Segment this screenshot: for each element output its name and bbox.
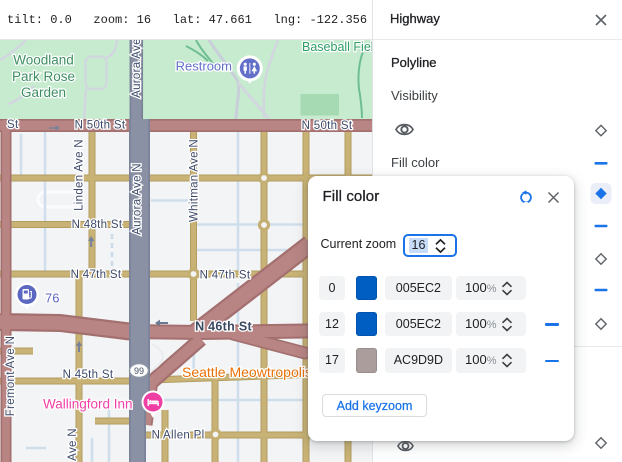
svg-text:N 46th St: N 46th St bbox=[195, 320, 252, 334]
svg-text:St: St bbox=[7, 119, 19, 131]
svg-text:N 45th St: N 45th St bbox=[63, 369, 114, 381]
svg-text:Park Rose: Park Rose bbox=[12, 69, 75, 84]
svg-text:N 50th St: N 50th St bbox=[302, 120, 353, 132]
svg-text:Linden Ave N: Linden Ave N bbox=[74, 139, 86, 211]
svg-text:Woodland: Woodland bbox=[13, 53, 74, 68]
svg-text:Baseball Fiel: Baseball Fiel bbox=[302, 40, 372, 54]
svg-text:Whitman Ave N: Whitman Ave N bbox=[189, 139, 201, 222]
svg-text:Fremont Ave N: Fremont Ave N bbox=[5, 336, 17, 416]
svg-text:Aurora Ave N: Aurora Ave N bbox=[132, 163, 144, 235]
svg-text:Garden: Garden bbox=[21, 85, 66, 100]
svg-text:N 47th St: N 47th St bbox=[71, 269, 122, 281]
svg-text:N Allen Pl: N Allen Pl bbox=[152, 430, 205, 442]
svg-text:N 50th St: N 50th St bbox=[75, 120, 126, 132]
svg-text:76: 76 bbox=[45, 291, 59, 306]
svg-text:N 47th St: N 47th St bbox=[200, 270, 251, 282]
svg-text:N 48th St: N 48th St bbox=[72, 219, 123, 231]
svg-text:Wallingford Inn: Wallingford Inn bbox=[43, 397, 133, 412]
svg-text:99: 99 bbox=[134, 366, 144, 376]
svg-text:Ave N: Ave N bbox=[67, 428, 79, 461]
svg-text:Restroom: Restroom bbox=[176, 59, 232, 74]
svg-text:Seattle Meowtropolis: Seattle Meowtropolis bbox=[182, 364, 312, 380]
